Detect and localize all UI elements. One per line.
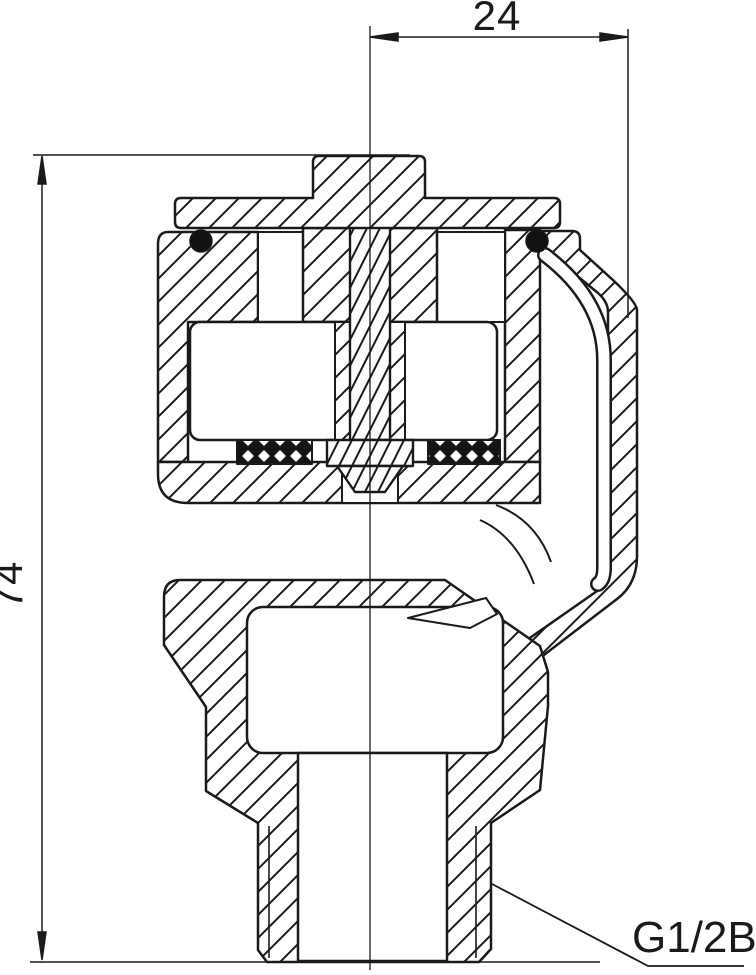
dim74-arrow-bottom xyxy=(38,932,46,960)
lower-cavity xyxy=(247,607,503,753)
bonnet-cap-section xyxy=(175,156,560,228)
dim74-arrow-top xyxy=(38,156,46,184)
cartridge-right-wall-section xyxy=(505,230,540,462)
seal-ring-right-section xyxy=(428,440,500,464)
valve-section-figure: 24 74 G1/2B xyxy=(0,0,756,975)
dim-width-label: 24 xyxy=(473,0,522,39)
o-ring-right xyxy=(526,230,548,252)
air-tube-bore xyxy=(545,255,604,584)
dim24-arrow-left xyxy=(370,33,398,41)
spigot-bore xyxy=(298,753,447,961)
stem-guide-left xyxy=(335,322,350,440)
o-ring-left xyxy=(190,230,212,252)
dim24-arrow-right xyxy=(600,33,628,41)
drawing-sheet: 24 74 G1/2B xyxy=(0,0,756,975)
discharge-channel-wall xyxy=(480,505,551,584)
dim-height-label: 74 xyxy=(0,561,31,610)
seal-ring-left-section xyxy=(237,440,312,464)
stem-guide-right xyxy=(390,322,405,440)
thread-size-label: G1/2B xyxy=(632,913,756,962)
